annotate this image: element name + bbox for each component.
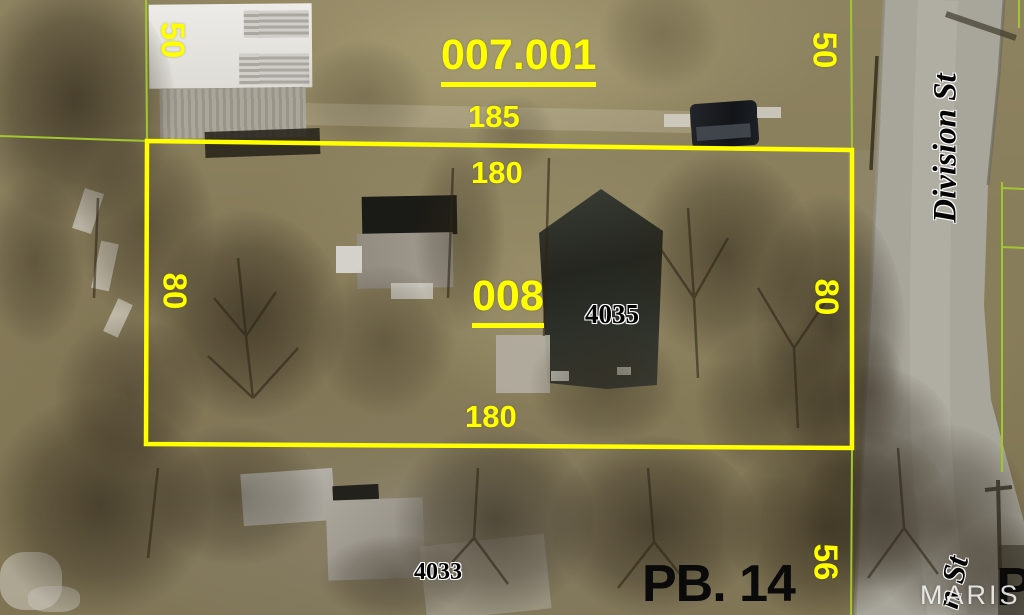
dim-west-label: 80: [159, 273, 192, 310]
dim-east-label: 80: [811, 279, 844, 316]
street-name-division-st: Division St: [930, 73, 963, 222]
dim-south-label: 180: [465, 401, 517, 432]
address-4033-label: 4033: [414, 560, 462, 584]
address-4035-label: 4035: [585, 301, 639, 328]
parcel-id-selected-label: 008: [472, 275, 544, 328]
parcel-id-north-text: 007.001: [441, 34, 596, 87]
dim-lot-se-label: 56: [810, 544, 843, 581]
dim-north-inner-label: 180: [471, 157, 523, 188]
labels-layer: 007.001 185 180 008 180 80 80 50 50 56 4…: [0, 0, 1024, 615]
plat-book-label: PB. 14: [642, 558, 795, 610]
dim-lot-nw-label: 50: [157, 22, 190, 59]
aerial-parcel-map: 007.001 185 180 008 180 80 80 50 50 56 4…: [0, 0, 1024, 615]
dim-north-outer-label: 185: [468, 101, 520, 132]
dim-lot-ne-label: 50: [809, 32, 842, 69]
maris-watermark: MARIS: [920, 580, 1021, 611]
parcel-id-selected-text: 008: [472, 275, 544, 328]
parcel-id-north-label: 007.001: [441, 34, 596, 87]
